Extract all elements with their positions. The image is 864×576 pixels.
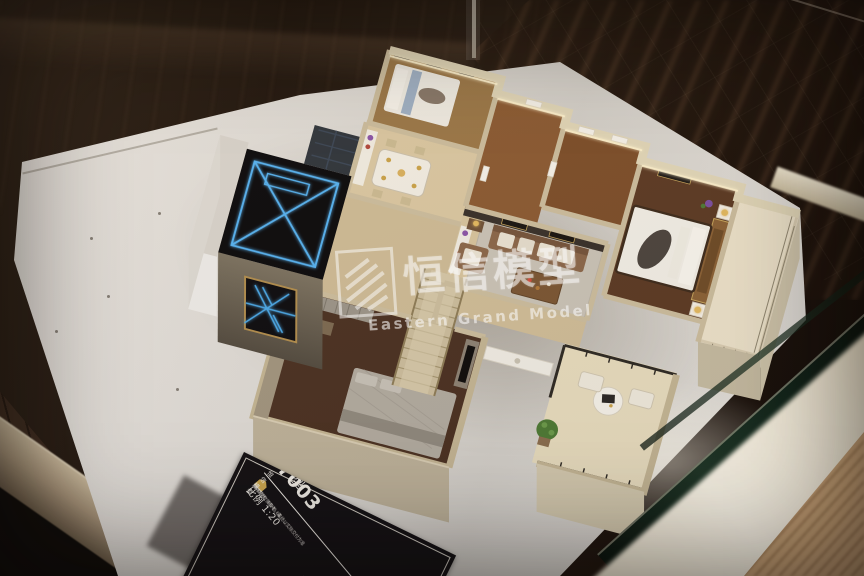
- base-speck: [55, 330, 58, 333]
- watermark: 恒信模型 Eastern Grand Model: [334, 227, 591, 354]
- photo-scene: 恒信模型 Eastern Grand Model Y003 户型 恒信模型 比例…: [0, 0, 864, 576]
- base-speck: [90, 237, 93, 240]
- glass-pane-edge: [472, 0, 476, 58]
- scale-cross-icon: [286, 562, 348, 576]
- watermark-cn-text: 恒信模型: [401, 232, 585, 305]
- base-speck: [158, 212, 161, 215]
- eastern-grand-logo: [335, 247, 398, 319]
- watermark-en-text: Eastern Grand Model: [368, 301, 594, 335]
- base-speck: [107, 295, 110, 298]
